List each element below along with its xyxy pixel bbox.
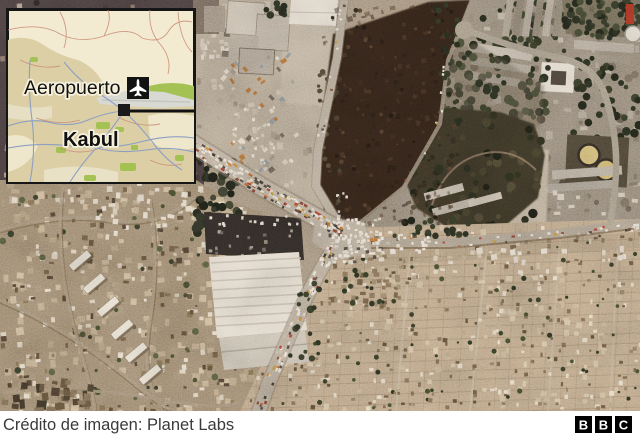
svg-text:Kabul: Kabul	[63, 129, 119, 151]
svg-text:Aeropuerto: Aeropuerto	[24, 77, 121, 99]
svg-text:B: B	[599, 418, 608, 433]
svg-text:Crédito de imagen: Planet Labs: Crédito de imagen: Planet Labs	[3, 416, 234, 434]
svg-text:C: C	[619, 418, 629, 433]
svg-text:B: B	[579, 418, 588, 433]
